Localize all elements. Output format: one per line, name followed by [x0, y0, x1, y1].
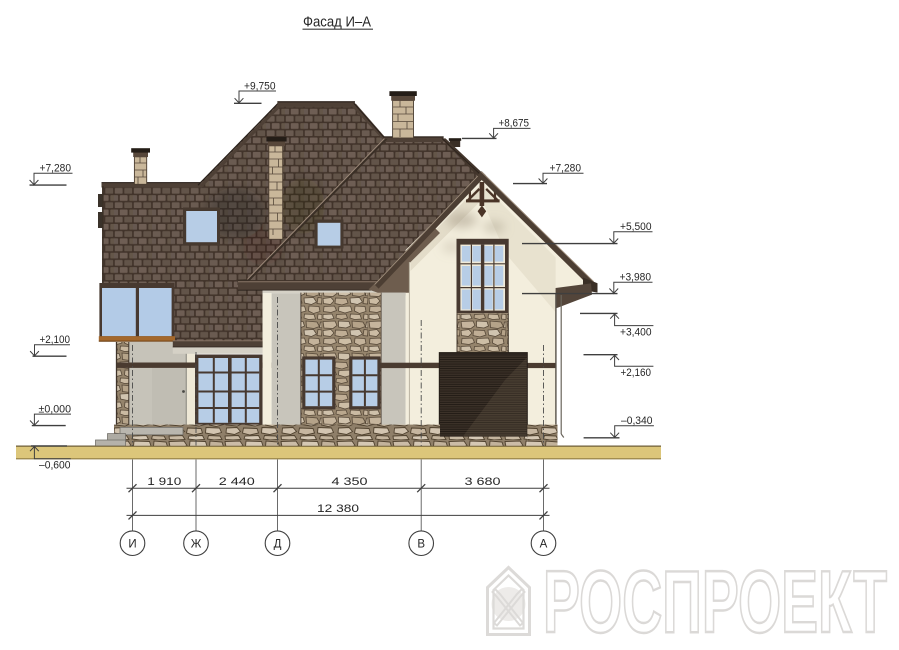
svg-text:Ж: Ж [191, 539, 202, 551]
svg-text:+9,750: +9,750 [244, 80, 276, 92]
svg-text:+7,280: +7,280 [40, 163, 72, 175]
svg-text:А: А [540, 539, 548, 551]
svg-text:+7,280: +7,280 [550, 163, 582, 175]
svg-text:3 680: 3 680 [465, 476, 501, 488]
svg-text:+2,160: +2,160 [621, 367, 652, 379]
svg-text:+8,675: +8,675 [499, 118, 530, 130]
svg-text:12 380: 12 380 [317, 503, 359, 515]
svg-text:+2,100: +2,100 [40, 334, 71, 346]
svg-text:4 350: 4 350 [332, 476, 368, 488]
svg-text:Д: Д [274, 539, 282, 551]
svg-text:Фасад И–А: Фасад И–А [303, 15, 371, 31]
svg-text:1 910: 1 910 [147, 476, 181, 488]
svg-text:И: И [128, 539, 136, 551]
svg-text:±0,000: ±0,000 [39, 403, 72, 415]
svg-text:РОСПРОЕКТ: РОСПРОЕКТ [543, 552, 887, 650]
svg-text:+5,500: +5,500 [620, 221, 652, 233]
svg-text:–0,340: –0,340 [621, 415, 653, 427]
svg-text:2 440: 2 440 [219, 476, 255, 488]
svg-text:+3,400: +3,400 [620, 326, 652, 338]
svg-text:В: В [417, 539, 425, 551]
svg-text:–0,600: –0,600 [39, 459, 71, 471]
svg-text:+3,980: +3,980 [620, 272, 652, 284]
